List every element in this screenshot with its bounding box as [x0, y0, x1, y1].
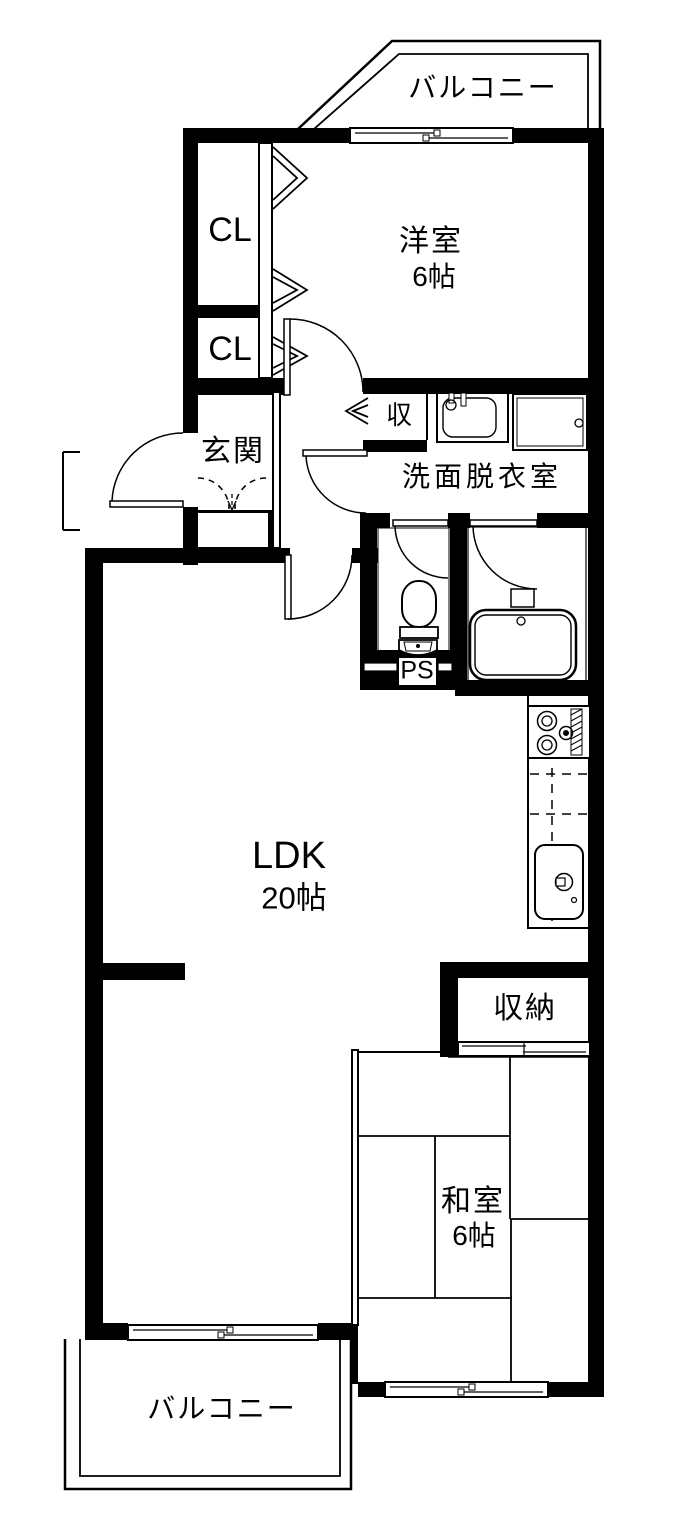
label-hall-storage: 収 — [386, 402, 412, 428]
window-ldk-balcony — [128, 1325, 318, 1340]
washing-machine-pan — [513, 394, 587, 450]
label-balcony-top: バルコニー — [408, 74, 557, 102]
storage-sliding-door — [458, 1042, 590, 1056]
label-closet-upper: CL — [208, 213, 251, 247]
label-closet-lower: CL — [208, 332, 251, 366]
label-western-room-size: 6帖 — [412, 263, 456, 291]
label-pipe-space: PS — [400, 659, 433, 684]
label-washroom: 洗面脱衣室 — [402, 463, 562, 491]
label-japanese-room-size: 6帖 — [452, 1222, 496, 1250]
floor-plan: バルコニー 洋室 6帖 CL CL 玄関 収 洗面脱衣室 PS LDK 20帖 … — [0, 0, 682, 1540]
label-japanese-room: 和室 — [441, 1187, 505, 1217]
walls — [85, 128, 604, 1397]
floor-plan-drawing — [0, 0, 682, 1540]
bathtub — [470, 610, 576, 680]
label-western-room: 洋室 — [399, 227, 463, 257]
label-balcony-bottom: バルコニー — [147, 1395, 296, 1423]
shoe-cabinet — [197, 512, 269, 548]
window-western-room — [350, 128, 513, 143]
label-ldk-size: 20帖 — [261, 883, 326, 914]
partitions — [63, 143, 590, 1325]
entrance-step-marks — [198, 478, 266, 510]
stove — [528, 706, 590, 758]
toilet — [399, 581, 438, 655]
washbasin — [437, 393, 508, 442]
window-japanese-room — [385, 1382, 548, 1397]
label-entrance: 玄関 — [201, 437, 265, 467]
kitchen-sink — [535, 845, 583, 919]
label-ldk: LDK — [252, 837, 326, 875]
label-storage: 収納 — [493, 994, 557, 1024]
